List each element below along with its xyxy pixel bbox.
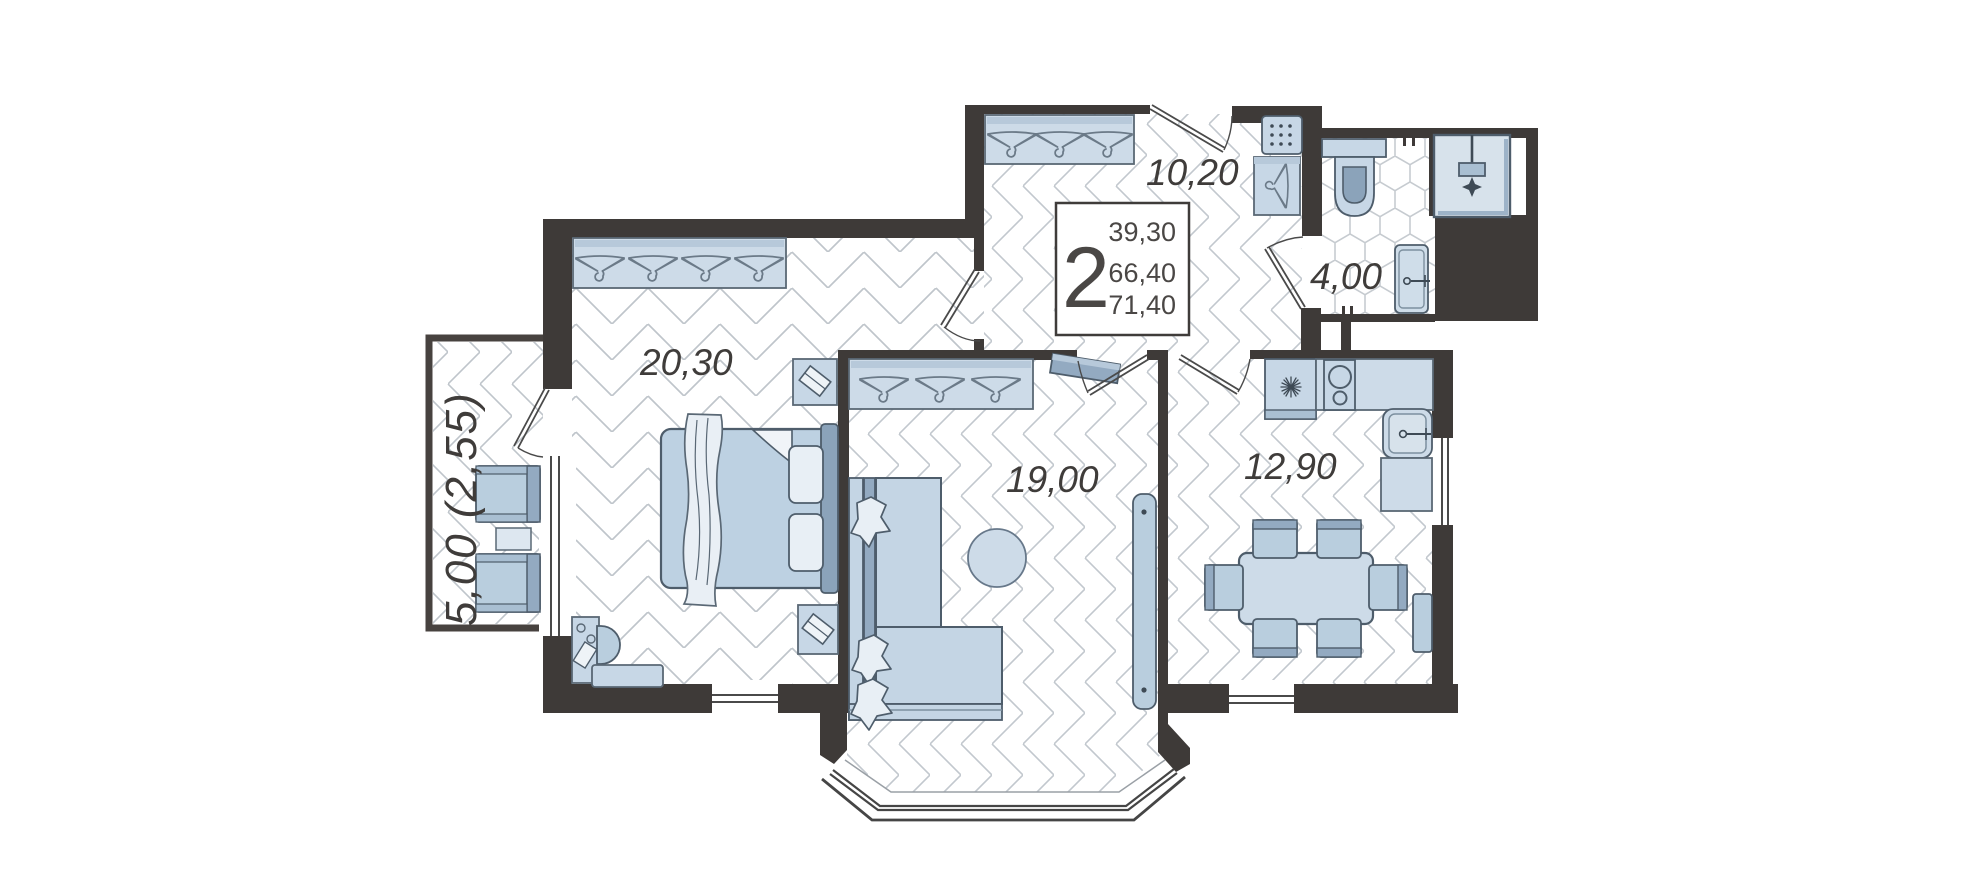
svg-text:2: 2 bbox=[1062, 230, 1110, 326]
svg-text:10,20: 10,20 bbox=[1146, 152, 1239, 193]
svg-text:19,00: 19,00 bbox=[1006, 459, 1099, 500]
svg-text:4,00: 4,00 bbox=[1310, 256, 1382, 297]
svg-text:12,90: 12,90 bbox=[1244, 446, 1337, 487]
svg-text:39,30: 39,30 bbox=[1108, 217, 1176, 247]
svg-text:71,40: 71,40 bbox=[1108, 290, 1176, 320]
svg-text:5,00 (2,55): 5,00 (2,55) bbox=[437, 391, 486, 626]
svg-text:20,30: 20,30 bbox=[639, 342, 733, 383]
svg-text:66,40: 66,40 bbox=[1108, 258, 1176, 288]
